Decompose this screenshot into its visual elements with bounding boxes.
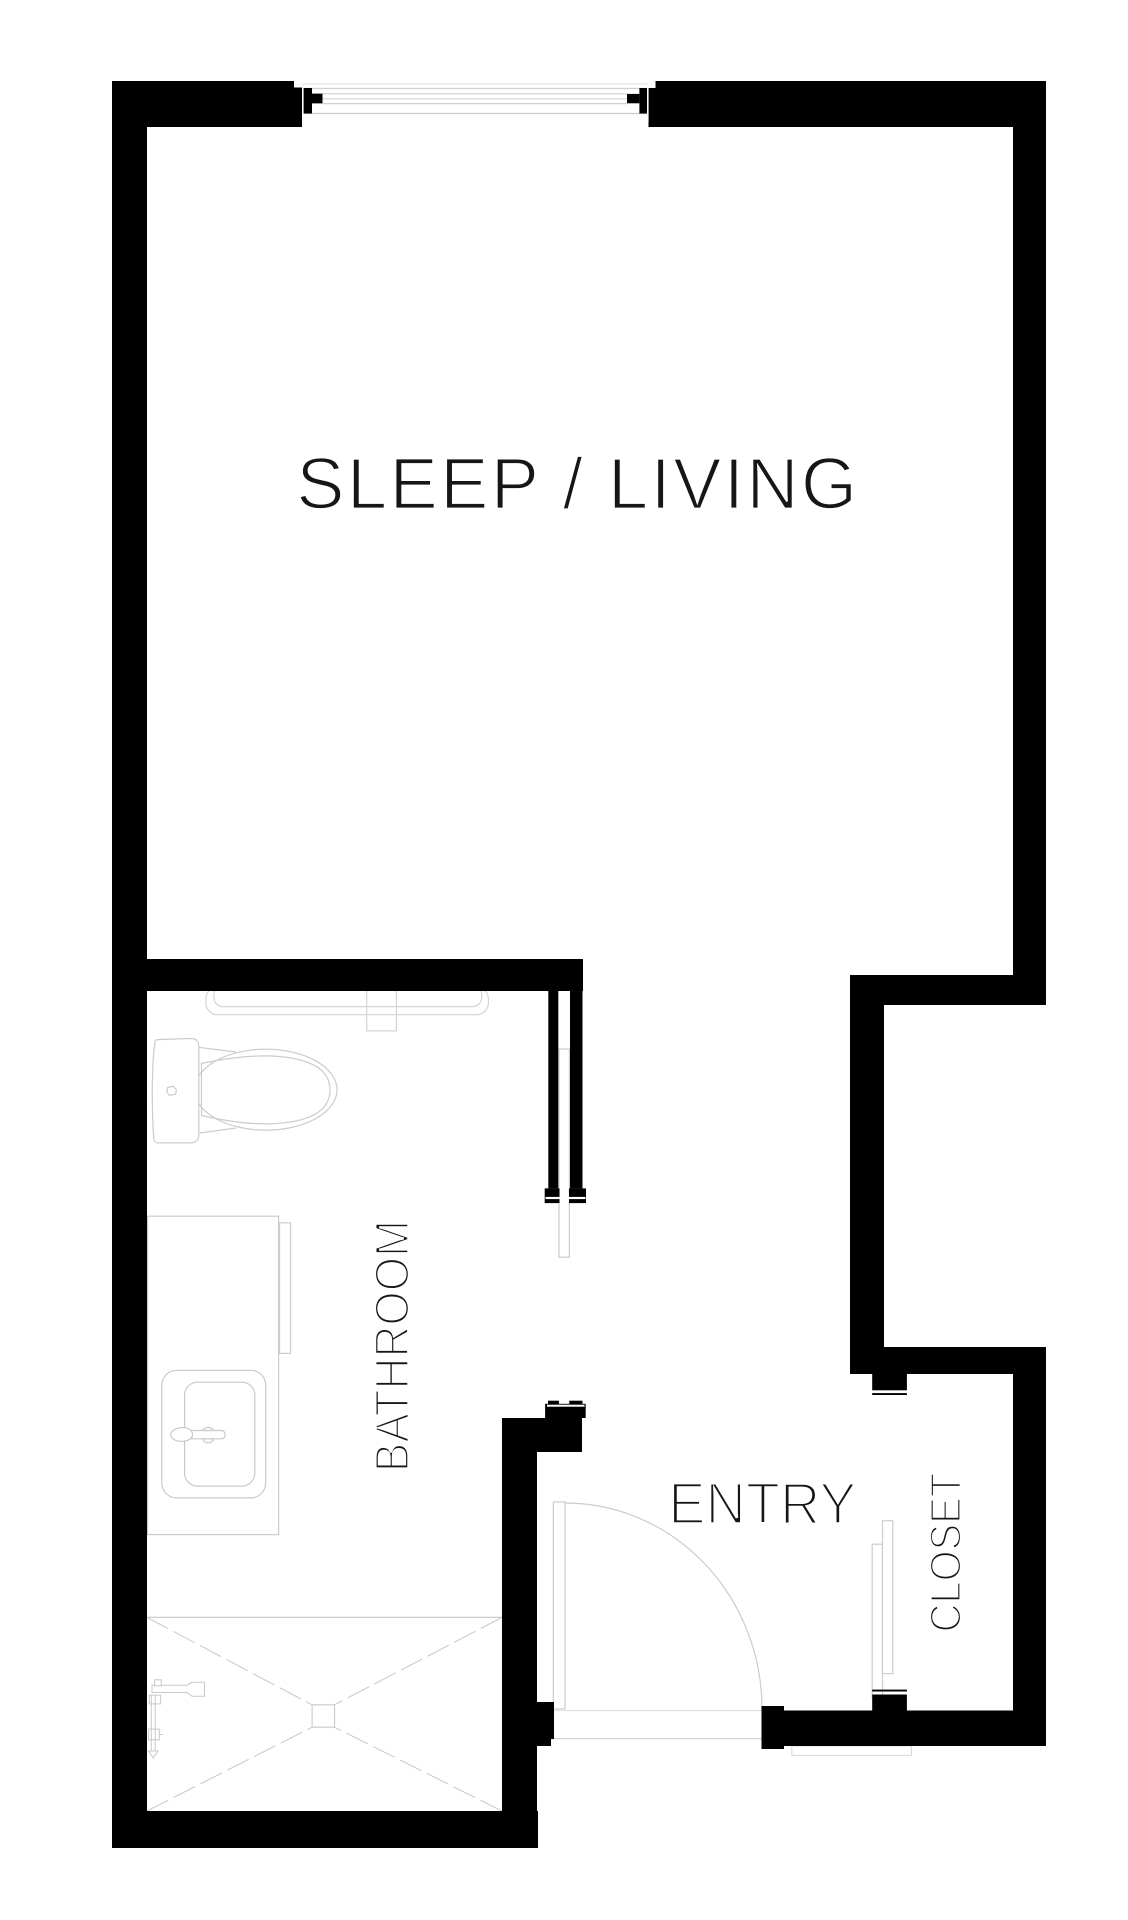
svg-text:BATHROOM: BATHROOM bbox=[365, 1220, 419, 1472]
svg-text:CLOSET: CLOSET bbox=[921, 1473, 970, 1632]
svg-text:ENTRY: ENTRY bbox=[668, 1471, 856, 1536]
svg-text:SLEEP / LIVING: SLEEP / LIVING bbox=[296, 444, 859, 524]
